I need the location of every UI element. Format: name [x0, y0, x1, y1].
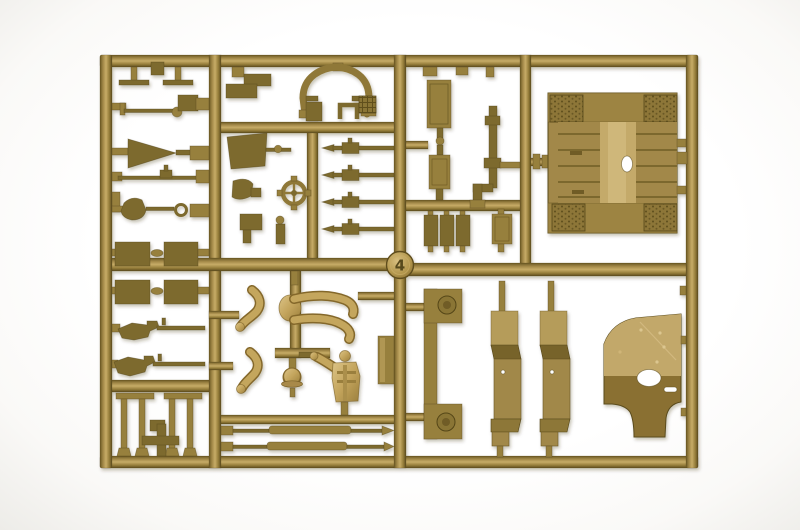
door-panel-part-1: [427, 80, 451, 155]
mudflap-bracket-part: [226, 74, 271, 98]
sprue-tab: [456, 67, 468, 75]
runner-h-center-right: [406, 263, 686, 276]
horn-linkage-part: [112, 192, 209, 220]
helmet-part: [282, 368, 303, 398]
control-lever-part-2: [112, 165, 209, 183]
pedal-part-1: [119, 67, 149, 85]
gate-marker-number: 4: [395, 257, 405, 275]
runner-h-mid-top: [221, 122, 394, 133]
small-bracket-part: [240, 214, 285, 244]
bed-hole: [622, 156, 633, 172]
sprue-photo: 4: [0, 0, 800, 530]
tool-stake-3: [322, 192, 394, 208]
fender-strip-part-2: [540, 281, 570, 457]
mount-foot-part: [306, 102, 322, 121]
jerrycan-3: [456, 215, 470, 246]
barrel-pipe-part: [470, 67, 520, 208]
runner-left: [100, 55, 112, 468]
hatched-plate-part: [359, 96, 376, 113]
jerrycan-2: [440, 215, 454, 246]
bed-tread-pad: [644, 95, 677, 122]
figure-arm-part-2: [237, 352, 258, 394]
open-bracket-part: [340, 105, 357, 119]
cab-rear-panel-part: [598, 310, 688, 437]
axle-rod-part-1: [221, 426, 394, 435]
bed-tread-pad: [552, 204, 585, 231]
runner-h-center-left: [112, 258, 394, 271]
axle-rod-part-2: [221, 442, 394, 451]
door-panel-part-2: [429, 155, 450, 200]
steering-wheel-part: [277, 176, 311, 210]
tool-stake-2: [322, 165, 394, 181]
tool-stake-parts: [322, 138, 394, 235]
rifle-part-2: [112, 354, 205, 376]
frame-nub: [680, 286, 686, 295]
bumper-bracket-part: [406, 289, 462, 439]
runner-h-rod-rack: [221, 415, 394, 424]
seat-bracket-part: [232, 179, 261, 199]
funnel-part: [112, 139, 209, 168]
windshield-part: [227, 133, 267, 169]
gate-marker-disc: 4: [387, 252, 414, 279]
link-rod-part: [266, 145, 291, 153]
sprue-tab: [232, 67, 244, 77]
runner-h-left-lower: [112, 380, 209, 392]
cab-panel-slot: [664, 387, 677, 392]
sprue-tab: [423, 67, 437, 76]
tool-stake-1: [322, 138, 394, 154]
cab-panel-opening: [637, 370, 661, 387]
runner-vertical-4: [520, 55, 531, 270]
pedal-part-2: [163, 67, 193, 85]
fender-strip-part-1: [491, 281, 521, 457]
jerrycan-1: [424, 215, 438, 246]
mid-top-parts: [226, 63, 376, 121]
runner-right: [686, 55, 698, 468]
sprue-photo-svg: 4: [0, 0, 800, 530]
tool-stake-4: [322, 219, 394, 235]
right-mid-parts: [406, 67, 520, 252]
rifle-part-1: [112, 318, 205, 340]
control-lever-part-1: [112, 95, 209, 117]
jerrycan-parts: [424, 209, 512, 252]
bed-tread-pad: [550, 95, 583, 122]
figure-torso-part: [299, 351, 360, 416]
cargo-bed-part: [531, 93, 687, 233]
bed-tread-pad: [644, 204, 677, 231]
stowage-lid-row-2: [112, 280, 209, 304]
small-block-part: [151, 62, 164, 75]
